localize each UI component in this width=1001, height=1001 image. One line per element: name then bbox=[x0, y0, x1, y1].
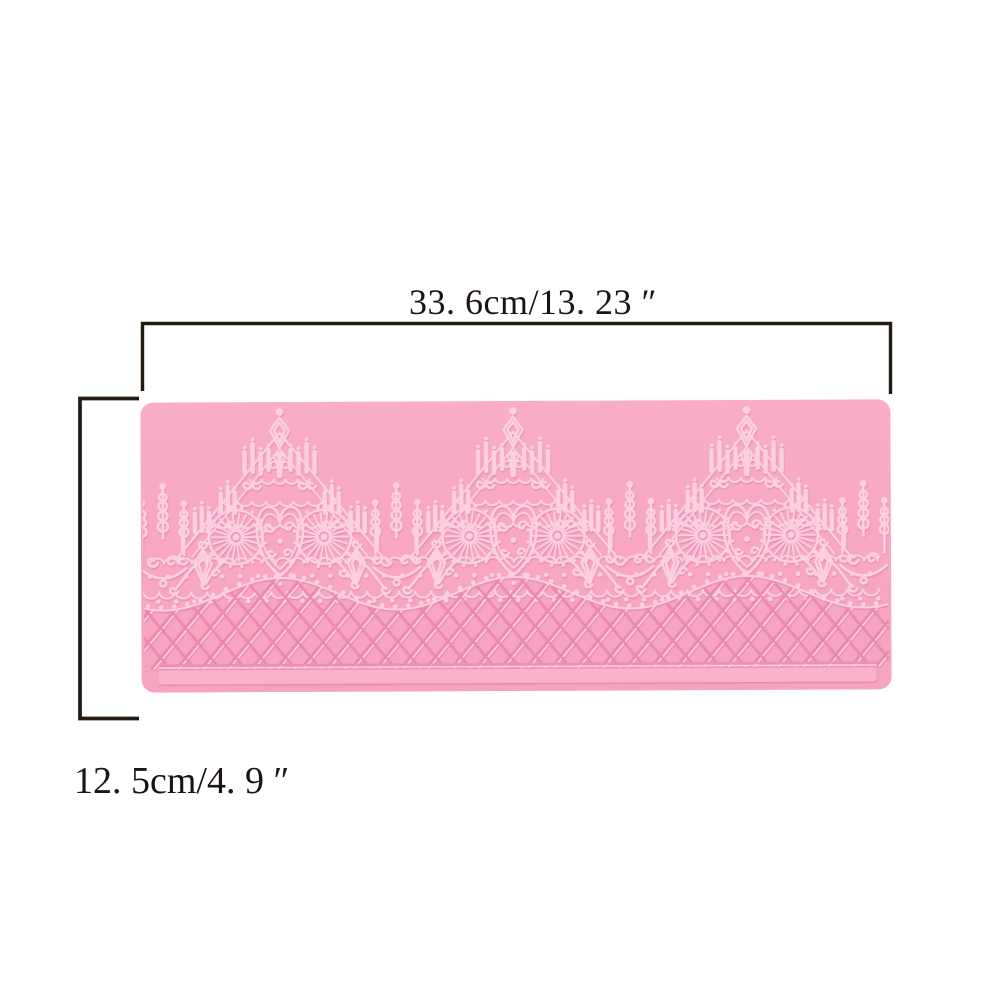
svg-text:33. 6cm/13. 23 ″: 33. 6cm/13. 23 ″ bbox=[409, 282, 657, 322]
svg-text:12. 5cm/4. 9 ″: 12. 5cm/4. 9 ″ bbox=[74, 760, 289, 802]
